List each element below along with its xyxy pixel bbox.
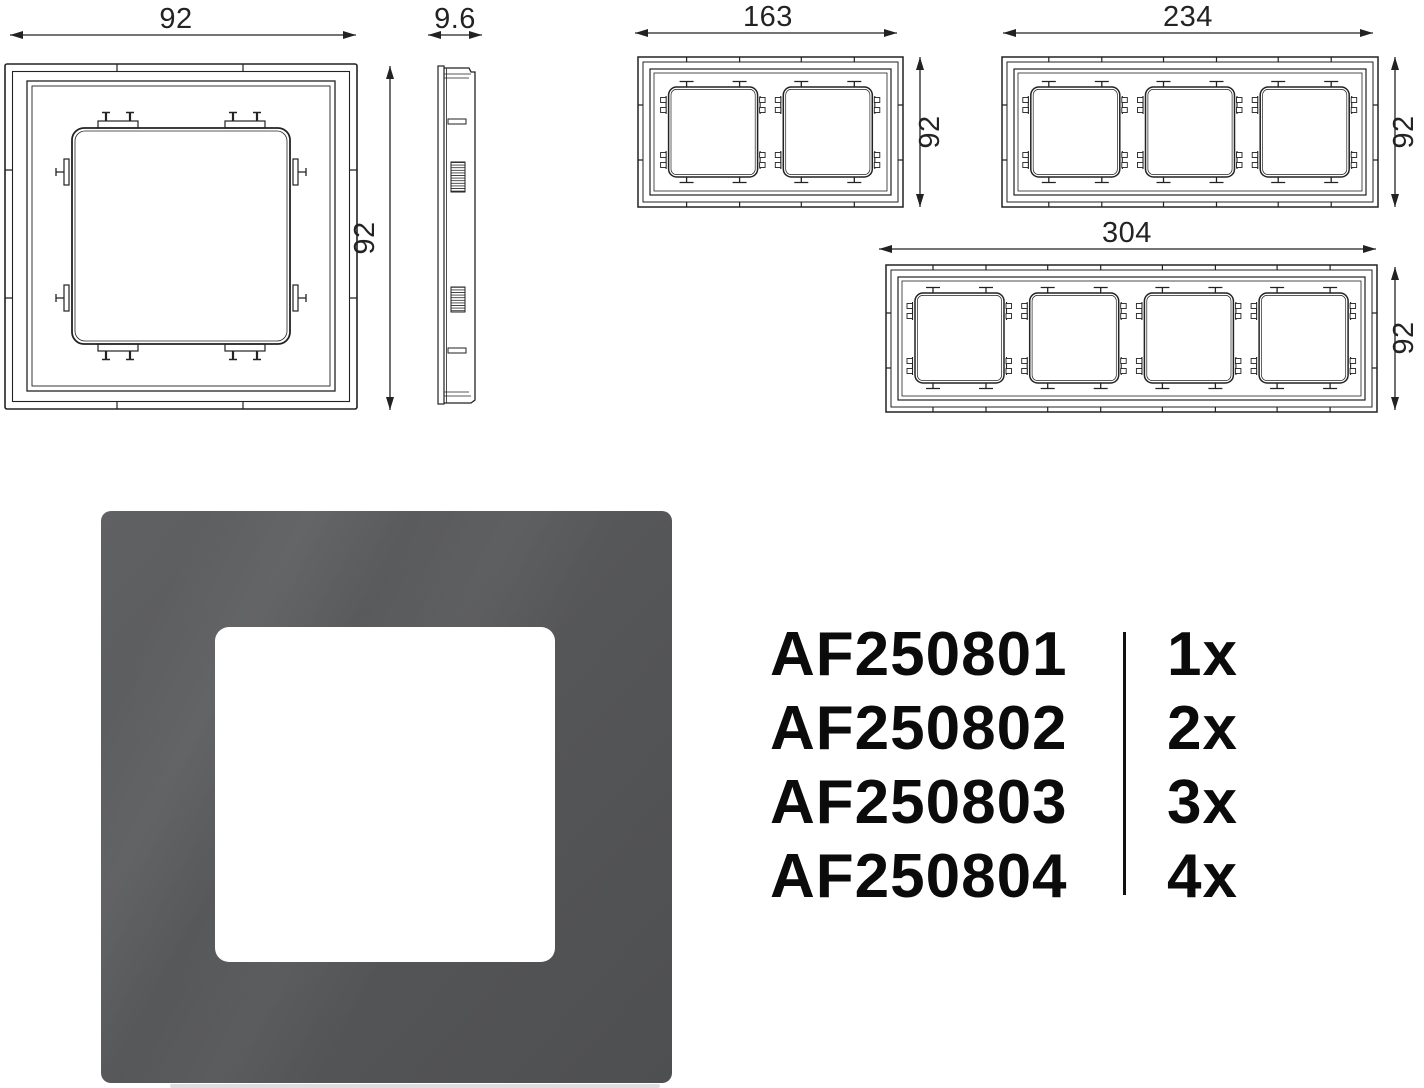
arrow-left-icon (1003, 29, 1016, 37)
arrow-down-icon (1391, 194, 1399, 207)
arrow-left-icon (635, 29, 648, 37)
product-row: AF250802 2x (770, 691, 1238, 765)
single-width-dimension: 92 (10, 3, 356, 39)
arrow-up-icon (386, 66, 394, 79)
product-render-image (101, 511, 672, 1083)
arrow-up-icon (916, 57, 924, 70)
single-height-dimension: 92 (349, 66, 394, 410)
product-code: AF250801 (770, 619, 1167, 690)
product-quantity: 2x (1167, 693, 1238, 764)
arrow-right-icon (884, 29, 897, 37)
product-code-table: AF250801 1x AF250802 2x AF250803 3x AF25… (770, 617, 1238, 913)
three-gang-width-dimension: 234 (1003, 1, 1373, 37)
datasheet-page: { "drawings": { "single": { "width_label… (0, 0, 1424, 1088)
product-render-base-edge (170, 1084, 660, 1088)
arrow-right-icon (343, 31, 356, 39)
four-gang-outline (886, 265, 1377, 412)
side-profile-drawing: 9.6 (425, 0, 500, 435)
depth-label: 9.6 (434, 3, 476, 35)
product-quantity: 3x (1167, 767, 1238, 838)
frame-cutout (215, 627, 555, 962)
two-gang-width-label: 163 (743, 1, 793, 33)
two-gang-frame-drawing: 163 92 (620, 0, 950, 230)
arrow-left-icon (879, 245, 892, 253)
three-gang-height-label: 92 (1388, 115, 1420, 148)
arrow-left-icon (10, 31, 23, 39)
two-gang-height-dimension: 92 (914, 57, 946, 207)
four-gang-width-label: 304 (1102, 217, 1152, 249)
four-gang-height-label: 92 (1388, 321, 1420, 354)
three-gang-outline (1002, 57, 1378, 207)
two-gang-width-dimension: 163 (635, 1, 897, 37)
four-gang-height-dimension: 92 (1388, 267, 1420, 410)
arrow-down-icon (386, 397, 394, 410)
product-quantity: 1x (1167, 619, 1238, 690)
single-frame-outline (5, 64, 357, 409)
arrow-down-icon (1391, 397, 1399, 410)
product-row: AF250801 1x (770, 617, 1238, 691)
three-gang-frame-drawing: 234 92 (985, 0, 1424, 230)
side-clips (56, 159, 306, 311)
product-code: AF250804 (770, 841, 1167, 912)
table-divider-line (1123, 632, 1126, 895)
single-frame-front-drawing: 92 92 (0, 0, 400, 435)
product-row: AF250803 3x (770, 765, 1238, 839)
product-quantity: 4x (1167, 841, 1238, 912)
arrow-down-icon (916, 194, 924, 207)
four-gang-frame-drawing: 304 92 (860, 218, 1424, 430)
product-code: AF250802 (770, 693, 1167, 764)
three-gang-height-dimension: 92 (1388, 57, 1420, 207)
arrow-right-icon (1363, 245, 1376, 253)
bottom-clips (98, 344, 265, 360)
product-code: AF250803 (770, 767, 1167, 838)
arrow-right-icon (1360, 29, 1373, 37)
single-height-label: 92 (349, 221, 381, 254)
two-gang-height-label: 92 (914, 115, 946, 148)
side-profile-outline (438, 66, 475, 404)
product-row: AF250804 4x (770, 839, 1238, 913)
top-clips (98, 113, 265, 129)
arrow-up-icon (1391, 267, 1399, 280)
single-width-label: 92 (159, 3, 192, 35)
depth-dimension: 9.6 (428, 3, 482, 39)
arrow-up-icon (1391, 57, 1399, 70)
two-gang-outline (638, 57, 903, 207)
three-gang-width-label: 234 (1163, 1, 1213, 33)
four-gang-width-dimension: 304 (879, 217, 1376, 253)
